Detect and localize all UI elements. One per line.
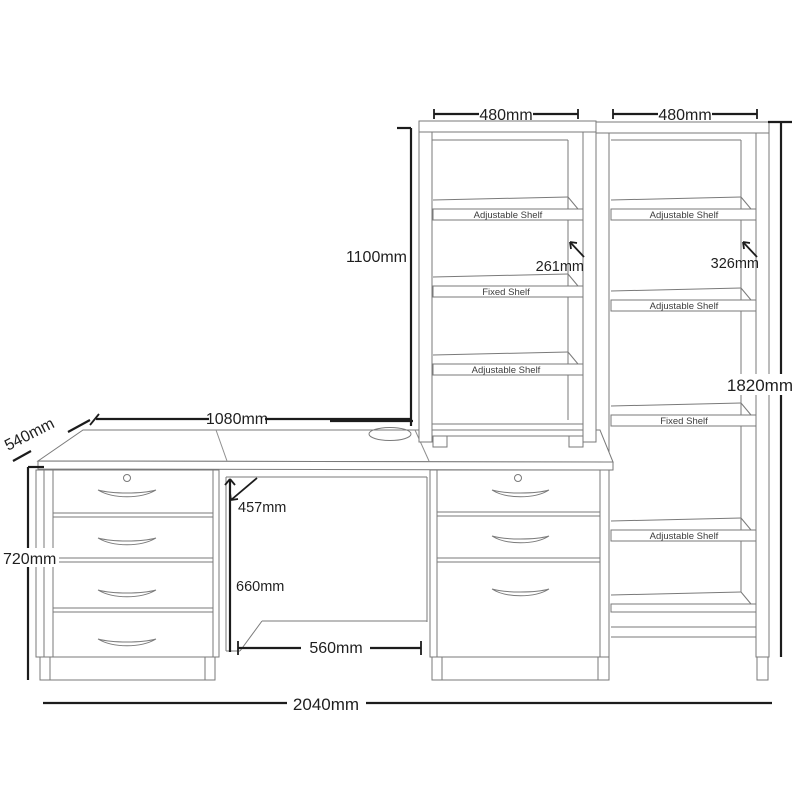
shelf-label: Adjustable Shelf [650, 210, 719, 221]
desk [38, 428, 613, 471]
dim-desk-height: 720mm [3, 551, 56, 568]
shelf-label: Fixed Shelf [660, 416, 708, 427]
desk-top-edge [38, 461, 613, 470]
shelf-label: Adjustable Shelf [650, 531, 719, 542]
dim-kneehole-depth: 457mm [238, 500, 286, 516]
shelf-label: Adjustable Shelf [650, 301, 719, 312]
dim-right-shelf-depth: 326mm [711, 256, 759, 272]
right-drawer-pedestal [430, 470, 609, 680]
dim-right-bookcase-height: 1820mm [727, 376, 793, 395]
dim-overall-width: 2040mm [293, 695, 359, 714]
left-bookcase [419, 121, 596, 447]
dim-kneehole-height: 660mm [236, 579, 284, 595]
dim-desk-width: 1080mm [206, 411, 268, 428]
left-drawer-pedestal [36, 470, 219, 680]
shelf-label: Adjustable Shelf [472, 365, 541, 376]
furniture-dimension-diagram: Adjustable Shelf Fixed Shelf Adjustable … [0, 0, 800, 800]
dim-left-shelf-depth: 261mm [536, 259, 584, 275]
dim-right-bookcase-width: 480mm [658, 107, 711, 124]
kneehole [219, 470, 427, 657]
dim-left-bookcase-width: 480mm [479, 107, 532, 124]
dim-desk-depth: 540mm [2, 415, 57, 454]
shelf-label: Adjustable Shelf [474, 210, 543, 221]
dimension-diagram-page: Adjustable Shelf Fixed Shelf Adjustable … [0, 0, 800, 800]
right-bookcase [596, 122, 769, 680]
dim-left-bookcase-height: 1100mm [346, 249, 407, 266]
desk-top [38, 430, 613, 462]
dim-kneehole-width: 560mm [309, 640, 362, 657]
shelf-label: Fixed Shelf [482, 287, 530, 298]
